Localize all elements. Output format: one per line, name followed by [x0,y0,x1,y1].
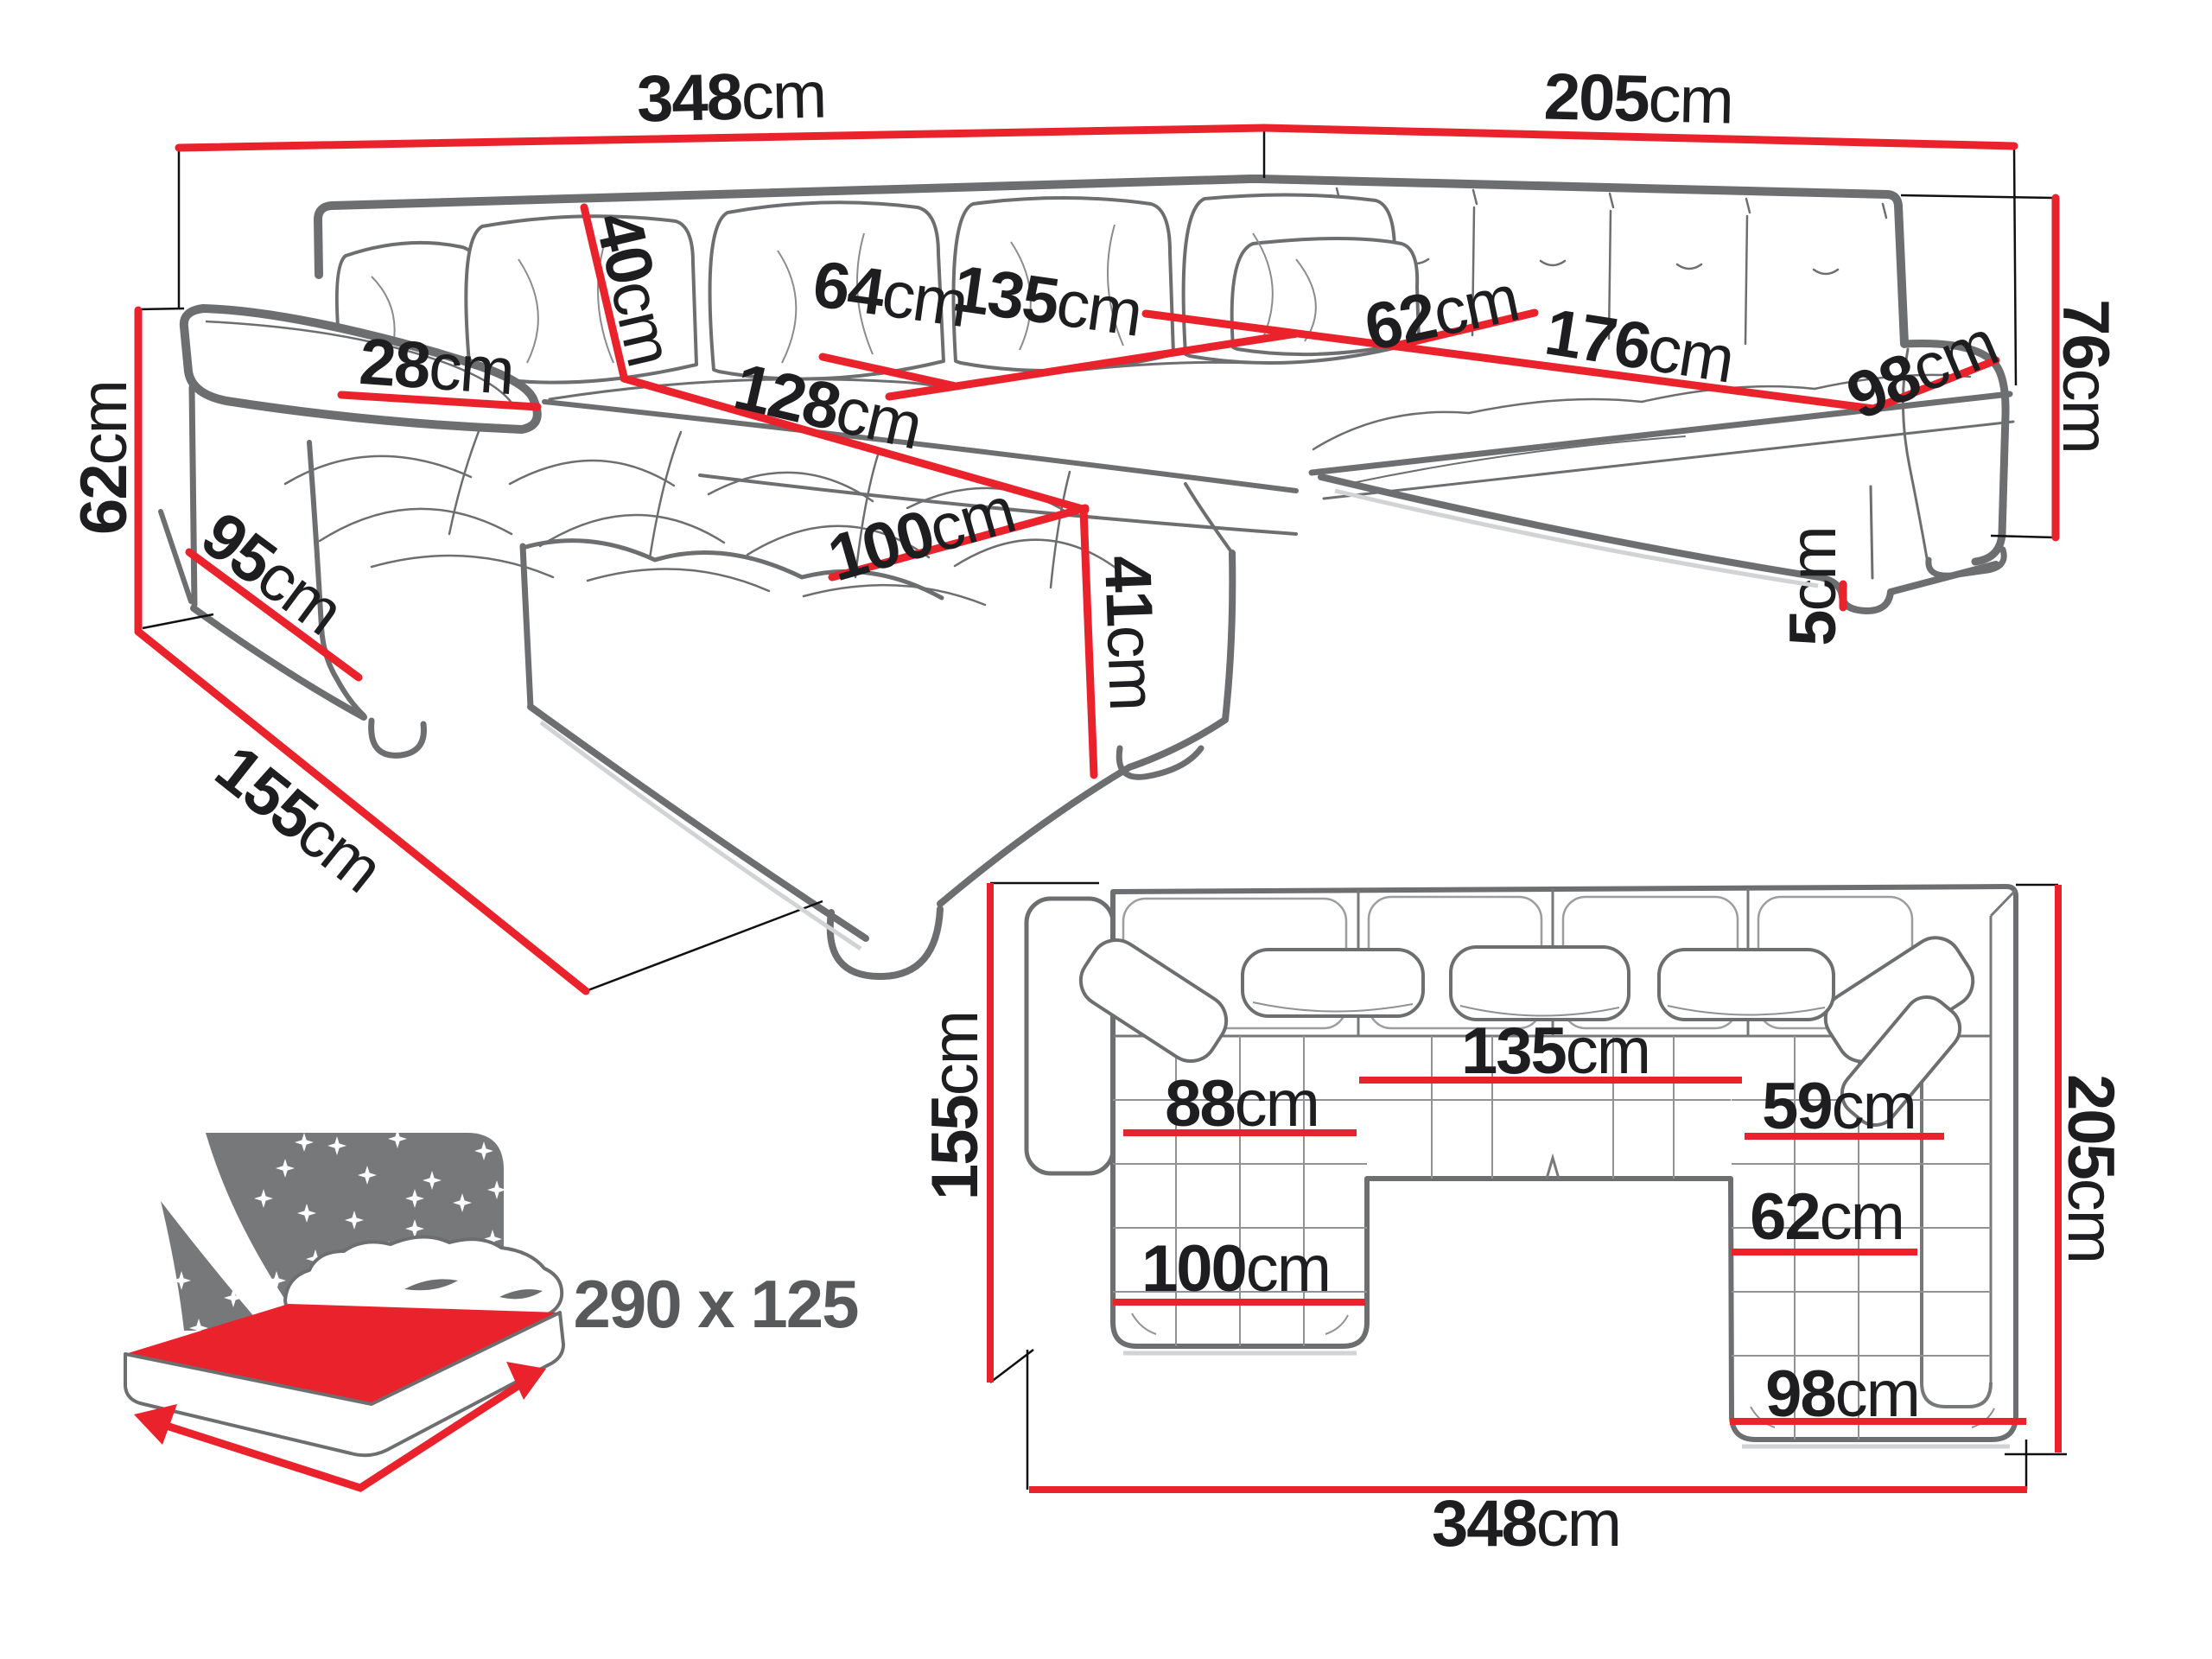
svg-text:41cm: 41cm [1090,555,1169,711]
svg-text:155cm: 155cm [918,1012,992,1200]
svg-text:290 x 125: 290 x 125 [573,1266,858,1342]
svg-text:62cm: 62cm [67,381,141,535]
svg-text:348cm: 348cm [1432,1487,1620,1560]
svg-text:135cm: 135cm [1461,1014,1649,1088]
svg-text:98cm: 98cm [1765,1357,1919,1431]
svg-text:348cm: 348cm [636,59,826,137]
svg-text:59cm: 59cm [1762,1070,1916,1143]
svg-text:205cm: 205cm [1543,60,1733,137]
svg-text:28cm: 28cm [357,325,515,409]
svg-text:62cm: 62cm [1750,1180,1904,1254]
svg-text:76cm: 76cm [2049,299,2122,453]
svg-text:100cm: 100cm [1141,1232,1330,1306]
svg-text:205cm: 205cm [2054,1074,2127,1262]
svg-text:88cm: 88cm [1165,1067,1319,1141]
